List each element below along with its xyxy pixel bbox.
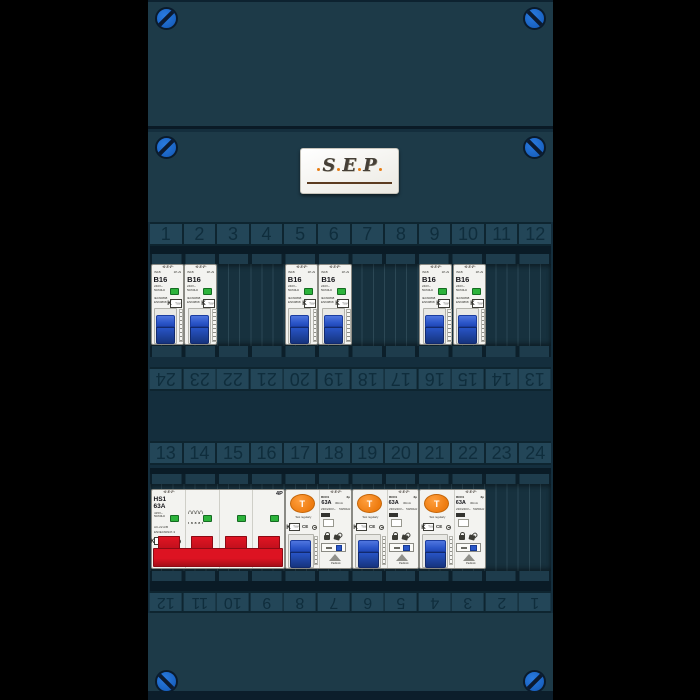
mcb-frequency: 50/60Hz xyxy=(288,289,299,292)
padlock-closed-icon xyxy=(324,535,330,540)
kema-mark: KTUV xyxy=(337,299,349,308)
rcd-toggle-handle-lower[interactable] xyxy=(290,552,311,568)
padlock-slider[interactable] xyxy=(456,543,481,552)
rcd-sensitivity: 30mA xyxy=(403,502,411,505)
slider-knob[interactable] xyxy=(336,545,343,552)
rcd-frequency: 50/60Hz xyxy=(406,508,417,511)
mcb-voltage: 240V~ xyxy=(187,285,196,288)
position-indicator-strip xyxy=(449,536,453,565)
main-switch-body: ·S·E·P· HS1 63A 415V~ 50/60Hz AC-22 A/B … xyxy=(151,489,285,569)
kema-mark: KTUV xyxy=(356,523,367,531)
logo-dot xyxy=(337,168,340,171)
release-triangle xyxy=(463,554,475,561)
rcd-model: RCD1 xyxy=(321,496,329,499)
rcd-sensitivity: 30mA xyxy=(470,502,478,505)
rcd-brand: ·S·E·P· xyxy=(394,491,412,494)
status-window xyxy=(323,519,334,527)
rcd-brand: ·S·E·P· xyxy=(461,491,479,494)
contact-diagram xyxy=(187,509,203,524)
mcb-toggle-handle[interactable] xyxy=(156,315,175,327)
status-indicator xyxy=(203,288,212,295)
main-switch-handle-bar[interactable] xyxy=(153,548,283,567)
terminal-number-cell: 17 xyxy=(284,443,316,463)
mcb-toggle-handle-lower[interactable] xyxy=(324,327,343,344)
position-indicator-strip xyxy=(179,309,184,342)
rcd-test-note: Test regularly xyxy=(362,516,377,519)
rcd-poles: 2p xyxy=(481,496,485,499)
kema-mark: KTUV xyxy=(438,299,450,308)
kema-mark: KTUV xyxy=(170,299,182,308)
mcb-rating: B16 xyxy=(187,276,201,284)
rcd-poles: 2p xyxy=(346,496,350,499)
terminal-number-cell: 11 xyxy=(486,224,518,244)
terminal-block-row xyxy=(150,571,551,581)
rcd-toggle-handle-lower[interactable] xyxy=(425,552,446,568)
mcb-toggle-handle-lower[interactable] xyxy=(190,327,209,344)
mcb-group-2: ·S·E·P· IN1B 1P+N B16 240V~ 50/60Hz IEC6… xyxy=(184,264,217,345)
terminal-number-cell: 24 xyxy=(150,369,182,389)
rcd-earth-leakage-device: T Test regularly KTUV CE ·S·E·P· RCD1 2p… xyxy=(419,489,486,569)
rcd-test-button[interactable]: T xyxy=(357,494,382,513)
padlock-open-icon xyxy=(468,534,475,540)
mcb-standard-1: IEC60898 xyxy=(456,297,469,300)
rcd-brand: ·S·E·P· xyxy=(327,491,345,494)
mcb-b16-breaker: ·S·E·P· IN1B 1P+N B16 240V~ 50/60Hz IEC6… xyxy=(285,264,318,345)
rcd-model: RCD1 xyxy=(389,496,397,499)
main-switch-hs1: ·S·E·P· HS1 63A 415V~ 50/60Hz AC-22 A/B … xyxy=(151,489,285,569)
terminal-number-cell: 23 xyxy=(184,369,216,389)
rcd-left-module: T Test regularly KTUV CE xyxy=(286,490,320,568)
position-indicator-strip xyxy=(346,309,351,342)
kema-mark: KTUV xyxy=(203,299,215,308)
padlock-slider[interactable] xyxy=(389,543,414,552)
rating-plate-mark xyxy=(321,513,330,517)
status-indicator xyxy=(438,288,447,295)
din-rail-row-upper: ·S·E·P· IN1B 1P+N B16 240V~ 50/60Hz IEC6… xyxy=(150,264,551,346)
hs1-poles-label: 4P xyxy=(276,492,283,498)
rcd-test-note: Test regularly xyxy=(429,516,444,519)
status-indicator xyxy=(170,288,179,295)
ce-mark: CE xyxy=(369,525,375,530)
rcd-left-module: T Test regularly KTUV CE xyxy=(420,490,454,568)
mcb-brand: ·S·E·P· xyxy=(192,266,209,269)
terminal-block-row xyxy=(150,346,551,357)
terminal-number-cell: 13 xyxy=(519,369,551,389)
rcd-voltage: 230/240V~ xyxy=(456,508,471,511)
slider-knob[interactable] xyxy=(403,545,410,552)
position-indicator-strip xyxy=(212,309,217,342)
padlock-label: Padlock xyxy=(396,562,411,565)
rcd-group-2: T Test regularly KTUV CE ·S·E·P· RCD1 2p… xyxy=(352,489,419,569)
screw-logo-right xyxy=(523,136,546,159)
logo-letter: P xyxy=(363,155,377,177)
terminal-number-cell: 20 xyxy=(385,443,417,463)
distribution-cabinet: SEP 123456789101112 ·S·E·P· IN1B 1P+N B1… xyxy=(148,0,553,700)
rcd-toggle-handle[interactable] xyxy=(425,540,446,552)
rcd-sensitivity: 30mA xyxy=(335,502,343,505)
rcd-toggle-handle[interactable] xyxy=(358,540,379,552)
terminal-number-cell: 4 xyxy=(251,224,283,244)
padlock-closed-icon xyxy=(392,535,398,540)
mcb-b16-breaker: ·S·E·P· IN1B 1P+N B16 240V~ 50/60Hz IEC6… xyxy=(151,264,184,345)
mcb-standard-1: IEC60898 xyxy=(187,297,200,300)
mcb-poles: 1P+N xyxy=(475,271,483,274)
status-indicator xyxy=(170,515,179,522)
slider-slot xyxy=(326,547,332,549)
rcd-right-module: ·S·E·P· RCD1 2p 63A 30mA 230/240V~ 50/60… xyxy=(454,490,488,568)
kema-letter: K xyxy=(354,524,359,530)
terminal-block-row xyxy=(150,474,551,484)
mcb-standard-1: IEC60898 xyxy=(154,297,167,300)
terminal-number-cell: 10 xyxy=(217,593,249,611)
mcb-model: IN1B xyxy=(456,271,463,274)
position-indicator-strip xyxy=(313,309,318,342)
mcb-brand: ·S·E·P· xyxy=(427,266,444,269)
mcb-rating: B16 xyxy=(154,276,168,284)
hs1-rating: 63A xyxy=(154,504,166,511)
slider-slot xyxy=(394,547,400,549)
terminal-number-cell: 15 xyxy=(217,443,249,463)
padlock-label: Padlock xyxy=(329,562,344,565)
terminal-number-cell: 9 xyxy=(251,593,283,611)
rcd-model: RCD1 xyxy=(456,496,464,499)
mcb-b16-breaker: ·S·E·P· IN1B 1P+N B16 240V~ 50/60Hz IEC6… xyxy=(184,264,217,345)
mcb-frequency: 50/60Hz xyxy=(154,289,165,292)
terminal-number-cell: 5 xyxy=(385,593,417,611)
terminal-block-row xyxy=(150,254,551,264)
mcb-voltage: 240V~ xyxy=(321,285,330,288)
terminal-strip-24-13-inverted: 242322212019181716151413 xyxy=(150,367,551,391)
ce-mark: CE xyxy=(302,525,308,530)
mcb-toggle-handle[interactable] xyxy=(324,315,343,327)
rcd-test-note: Test regularly xyxy=(295,516,310,519)
rcd-rating: 63A xyxy=(389,501,399,507)
mcb-standard-2: EN60898 xyxy=(187,301,200,304)
position-indicator-strip xyxy=(314,536,318,565)
terminal-number-cell: 6 xyxy=(352,593,384,611)
terminal-number-cell: 7 xyxy=(318,593,350,611)
mcb-toggle-handle[interactable] xyxy=(190,315,209,327)
terminal-number-cell: 21 xyxy=(419,443,451,463)
mcb-b16-breaker: ·S·E·P· IN1B 1P+N B16 240V~ 50/60Hz IEC6… xyxy=(453,264,486,345)
screw-logo-left xyxy=(155,136,178,159)
corner-screw-bottom-left xyxy=(155,670,178,693)
corner-screw-top-right xyxy=(523,7,546,30)
kema-letter: K xyxy=(287,524,292,530)
rcd-rating: 63A xyxy=(321,501,331,507)
logo-underline xyxy=(307,182,392,184)
padlock-open-icon xyxy=(401,534,408,540)
rcd-earth-leakage-device: T Test regularly KTUV CE ·S·E·P· RCD1 2p… xyxy=(352,489,419,569)
mcb-poles: 1P+N xyxy=(308,271,316,274)
terminal-strip-1-12: 123456789101112 xyxy=(150,222,551,246)
mcb-group-6: ·S·E·P· IN1B 1P+N B16 240V~ 50/60Hz IEC6… xyxy=(453,264,486,345)
status-window xyxy=(391,519,402,527)
mcb-brand: ·S·E·P· xyxy=(326,266,343,269)
mcb-standard-1: IEC60898 xyxy=(288,297,301,300)
mcb-brand: ·S·E·P· xyxy=(159,266,176,269)
terminal-number-cell: 1 xyxy=(519,593,551,611)
cabinet-bottom-edge xyxy=(148,691,553,700)
kema-letter: K xyxy=(421,524,426,530)
rating-plate-mark xyxy=(389,513,398,517)
terminal-number-cell: 17 xyxy=(385,369,417,389)
terminal-number-cell: 9 xyxy=(419,224,451,244)
mcb-voltage: 240V~ xyxy=(456,285,465,288)
rcd-group-1: T Test regularly KTUV CE ·S·E·P· RCD1 2p… xyxy=(285,489,352,569)
terminal-number-cell: 5 xyxy=(284,224,316,244)
mcb-group-5: ·S·E·P· IN1B 1P+N B16 240V~ 50/60Hz IEC6… xyxy=(419,264,452,345)
terminal-number-cell: 1 xyxy=(150,224,182,244)
terminal-number-cell: 24 xyxy=(519,443,551,463)
ce-mark: CE xyxy=(436,525,442,530)
kema-mark: KTUV xyxy=(289,523,300,531)
mcb-poles: 1P+N xyxy=(173,271,181,274)
terminal-number-cell: 4 xyxy=(419,593,451,611)
release-triangle xyxy=(329,554,341,561)
terminal-number-cell: 10 xyxy=(452,224,484,244)
groepenkast-product-image: SEP 123456789101112 ·S·E·P· IN1B 1P+N B1… xyxy=(0,0,700,700)
mcb-standard-2: EN60898 xyxy=(422,301,435,304)
status-indicator xyxy=(337,288,346,295)
mcb-voltage: 240V~ xyxy=(422,285,431,288)
mcb-frequency: 50/60Hz xyxy=(456,289,467,292)
status-indicator xyxy=(203,515,212,522)
terminal-number-cell: 14 xyxy=(486,369,518,389)
tuv-mark: TUV xyxy=(477,302,482,305)
position-indicator-strip xyxy=(382,536,386,565)
mcb-rating: B16 xyxy=(321,276,335,284)
mcb-rating: B16 xyxy=(288,276,302,284)
rcd-right-module: ·S·E·P· RCD1 2p 63A 30mA 230/240V~ 50/60… xyxy=(319,490,353,568)
corner-screw-top-left xyxy=(155,7,178,30)
rcd-frequency: 50/60Hz xyxy=(473,508,484,511)
mcb-voltage: 240V~ xyxy=(154,285,163,288)
tuv-mark: TUV xyxy=(343,302,348,305)
rcd-earth-leakage-device: T Test regularly KTUV CE ·S·E·P· RCD1 2p… xyxy=(285,489,352,569)
terminal-number-cell: 20 xyxy=(284,369,316,389)
terminal-number-cell: 2 xyxy=(184,224,216,244)
tuv-mark: TUV xyxy=(361,526,366,529)
terminal-number-cell: 3 xyxy=(452,593,484,611)
terminal-number-cell: 19 xyxy=(318,369,350,389)
terminal-number-cell: 12 xyxy=(519,224,551,244)
mcb-toggle-handle-lower[interactable] xyxy=(290,327,309,344)
terminal-number-cell: 12 xyxy=(150,593,182,611)
mcb-model: IN1B xyxy=(187,271,194,274)
logo-dot xyxy=(379,168,382,171)
terminal-number-cell: 7 xyxy=(352,224,384,244)
top-cover-plate xyxy=(148,0,553,129)
tuv-mark: TUV xyxy=(294,526,299,529)
mcb-toggle-handle[interactable] xyxy=(458,315,477,327)
terminal-number-cell: 8 xyxy=(284,593,316,611)
mcb-rating: B16 xyxy=(422,276,436,284)
terminal-number-cell: 23 xyxy=(486,443,518,463)
mcb-model: IN1B xyxy=(321,271,328,274)
mcb-model: IN1B xyxy=(288,271,295,274)
mcb-frequency: 50/60Hz xyxy=(422,289,433,292)
hs1-utilization: AC-22 A/B xyxy=(154,526,168,529)
kema-letter: K xyxy=(302,300,307,306)
terminal-strip-13-24: 131415161718192021222324 xyxy=(150,441,551,465)
mcb-standard-2: EN60898 xyxy=(288,301,301,304)
tuv-mark: TUV xyxy=(428,526,433,529)
rcd-right-module: ·S·E·P· RCD1 2p 63A 30mA 230/240V~ 50/60… xyxy=(387,490,421,568)
kema-letter: K xyxy=(168,300,173,306)
status-indicator xyxy=(237,515,246,522)
terminal-strip-12-1-inverted: 121110987654321 xyxy=(150,591,551,613)
tuv-mark: TUV xyxy=(175,302,180,305)
hs1-standard: EN/IEC60947-3 xyxy=(154,531,175,534)
approval-circle-mark xyxy=(312,525,317,530)
mcb-standard-1: IEC60898 xyxy=(321,297,334,300)
kema-letter: K xyxy=(151,538,156,544)
din-rail-row-lower: ·S·E·P· HS1 63A 415V~ 50/60Hz AC-22 A/B … xyxy=(150,484,551,571)
mcb-model: IN1B xyxy=(422,271,429,274)
mcb-standard-1: IEC60898 xyxy=(422,297,435,300)
mcb-b16-breaker: ·S·E·P· IN1B 1P+N B16 240V~ 50/60Hz IEC6… xyxy=(419,264,452,345)
terminal-number-cell: 19 xyxy=(352,443,384,463)
rcd-test-button[interactable]: T xyxy=(424,494,449,513)
rcd-toggle-handle-lower[interactable] xyxy=(358,552,379,568)
mcb-standard-2: EN60898 xyxy=(321,301,334,304)
kema-mark: KTUV xyxy=(423,523,434,531)
bottom-cover-plate xyxy=(148,613,553,700)
terminal-number-cell: 8 xyxy=(385,224,417,244)
corner-screw-bottom-right xyxy=(523,670,546,693)
status-indicator xyxy=(270,515,279,522)
logo-letter: S xyxy=(322,155,335,177)
rcd-toggle-handle[interactable] xyxy=(290,540,311,552)
position-indicator-strip xyxy=(447,309,452,342)
mcb-brand: ·S·E·P· xyxy=(461,266,478,269)
kema-mark: KTUV xyxy=(304,299,316,308)
status-window xyxy=(458,519,469,527)
rcd-poles: 2p xyxy=(414,496,418,499)
approval-circle-mark xyxy=(446,525,451,530)
wiring-channel xyxy=(150,581,551,591)
rcd-voltage: 230/240V~ xyxy=(389,508,404,511)
status-indicator xyxy=(472,288,481,295)
terminal-number-cell: 21 xyxy=(251,369,283,389)
tuv-mark: TUV xyxy=(443,302,448,305)
terminal-number-cell: 15 xyxy=(452,369,484,389)
release-triangle xyxy=(396,554,408,561)
mcb-poles: 1P+N xyxy=(341,271,349,274)
mcb-frequency: 50/60Hz xyxy=(187,289,198,292)
mcb-poles: 1P+N xyxy=(207,271,215,274)
wiring-channel xyxy=(150,246,551,254)
kema-letter: K xyxy=(201,300,206,306)
slider-slot xyxy=(461,547,467,549)
mcb-voltage: 240V~ xyxy=(288,285,297,288)
terminal-number-cell: 3 xyxy=(217,224,249,244)
terminal-number-cell: 22 xyxy=(217,369,249,389)
rcd-test-button[interactable]: T xyxy=(290,494,315,513)
mcb-standard-2: EN60898 xyxy=(154,301,167,304)
mcb-toggle-handle[interactable] xyxy=(290,315,309,327)
logo-dot xyxy=(317,168,320,171)
terminal-number-cell: 2 xyxy=(486,593,518,611)
mcb-poles: 1P+N xyxy=(442,271,450,274)
kema-letter: K xyxy=(470,300,475,306)
slider-knob[interactable] xyxy=(470,545,477,552)
mcb-toggle-handle-lower[interactable] xyxy=(425,327,444,344)
padlock-slider[interactable] xyxy=(321,543,346,552)
terminal-number-cell: 13 xyxy=(150,443,182,463)
mcb-brand: ·S·E·P· xyxy=(293,266,310,269)
mcb-toggle-handle-lower[interactable] xyxy=(156,327,175,344)
mcb-b16-breaker: ·S·E·P· IN1B 1P+N B16 240V~ 50/60Hz IEC6… xyxy=(318,264,351,345)
terminal-number-cell: 14 xyxy=(184,443,216,463)
mcb-group-4: ·S·E·P· IN1B 1P+N B16 240V~ 50/60Hz IEC6… xyxy=(318,264,351,345)
mcb-model: IN1B xyxy=(154,271,161,274)
terminal-number-cell: 6 xyxy=(318,224,350,244)
tuv-mark: TUV xyxy=(309,302,314,305)
rcd-left-module: T Test regularly KTUV CE xyxy=(353,490,387,568)
hs1-frequency: 50/60Hz xyxy=(154,515,165,518)
logo-dot xyxy=(358,168,361,171)
terminal-number-cell: 11 xyxy=(184,593,216,611)
kema-letter: K xyxy=(436,300,441,306)
terminal-number-cell: 22 xyxy=(452,443,484,463)
mcb-frequency: 50/60Hz xyxy=(321,289,332,292)
mcb-toggle-handle-lower[interactable] xyxy=(458,327,477,344)
padlock-open-icon xyxy=(334,534,341,540)
hs1-brand: ·S·E·P· xyxy=(159,491,177,494)
kema-mark: KTUV xyxy=(472,299,484,308)
terminal-number-cell: 16 xyxy=(419,369,451,389)
logo-letter: E xyxy=(342,155,356,177)
rating-plate-mark xyxy=(456,513,465,517)
rcd-group-3: T Test regularly KTUV CE ·S·E·P· RCD1 2p… xyxy=(419,489,486,569)
rcd-frequency: 50/60Hz xyxy=(339,508,350,511)
approval-circle-mark xyxy=(379,525,384,530)
padlock-closed-icon xyxy=(459,535,465,540)
terminal-number-cell: 16 xyxy=(251,443,283,463)
terminal-number-cell: 18 xyxy=(318,443,350,463)
kema-letter: K xyxy=(336,300,341,306)
terminal-number-cell: 18 xyxy=(352,369,384,389)
rcd-voltage: 230/240V~ xyxy=(321,508,336,511)
mcb-toggle-handle[interactable] xyxy=(425,315,444,327)
sep-logo: SEP xyxy=(301,155,398,177)
rcd-rating: 63A xyxy=(456,501,466,507)
mcb-group-1: ·S·E·P· IN1B 1P+N B16 240V~ 50/60Hz IEC6… xyxy=(151,264,184,345)
tuv-mark: TUV xyxy=(208,302,213,305)
position-indicator-strip xyxy=(481,309,486,342)
mcb-rating: B16 xyxy=(456,276,470,284)
mcb-standard-2: EN60898 xyxy=(456,301,469,304)
sep-logo-plate: SEP xyxy=(300,148,399,194)
status-indicator xyxy=(304,288,313,295)
mcb-group-3: ·S·E·P· IN1B 1P+N B16 240V~ 50/60Hz IEC6… xyxy=(285,264,318,345)
padlock-label: Padlock xyxy=(463,562,478,565)
